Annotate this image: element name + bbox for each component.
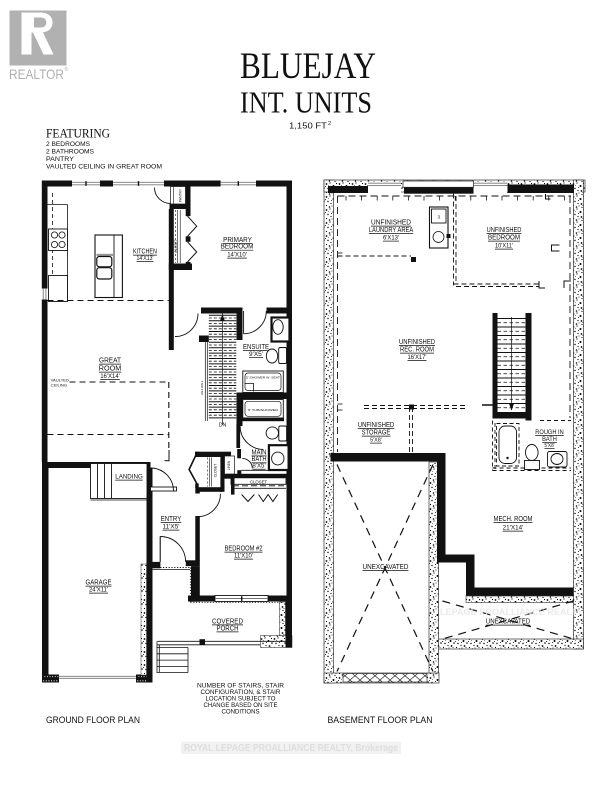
svg-text:VAULTED: VAULTED <box>51 379 70 383</box>
svg-text:BASEMENT FLOOR PLAN: BASEMENT FLOOR PLAN <box>328 715 433 726</box>
svg-text:UNFINISHED: UNFINISHED <box>487 227 522 234</box>
svg-text:LANDING: LANDING <box>115 475 143 481</box>
svg-text:CONDITIONS: CONDITIONS <box>222 709 260 716</box>
svg-text:BEDROOM: BEDROOM <box>221 244 254 251</box>
svg-text:VAULTED CEILING IN GREAT ROOM: VAULTED CEILING IN GREAT ROOM <box>46 164 162 171</box>
svg-text:1,150 FT: 1,150 FT <box>289 121 327 131</box>
svg-text:24'X11': 24'X11' <box>89 588 108 594</box>
svg-text:UNFINISHED: UNFINISHED <box>371 220 411 227</box>
svg-text:UNFINISHED: UNFINISHED <box>358 422 395 429</box>
svg-text:MECH. ROOM: MECH. ROOM <box>494 516 533 523</box>
svg-text:21'X14': 21'X14' <box>503 526 524 532</box>
svg-text:CLOSET: CLOSET <box>250 479 267 484</box>
svg-text:ROYAL LEPAGE PROALLIANCE REALT: ROYAL LEPAGE PROALLIANCE REALTY, Brokera… <box>184 743 398 754</box>
svg-text:DN: DN <box>219 423 227 429</box>
svg-text:REALTOR: REALTOR <box>9 66 64 82</box>
svg-text:GREAT: GREAT <box>99 358 122 365</box>
svg-text:GROUND FLOOR PLAN: GROUND FLOOR PLAN <box>46 715 140 726</box>
svg-text:CLOSET: CLOSET <box>174 239 178 252</box>
svg-text:STORAGE: STORAGE <box>362 430 391 437</box>
svg-text:ROOM: ROOM <box>99 366 122 373</box>
svg-text:6'X13': 6'X13' <box>383 236 399 242</box>
svg-text:5'X8': 5'X8' <box>544 443 554 449</box>
svg-text:11'X5': 11'X5' <box>163 525 180 531</box>
svg-text:BLUEJAY: BLUEJAY <box>240 46 376 87</box>
svg-text:ROUGH IN: ROUGH IN <box>535 429 564 436</box>
svg-text:PORCH: PORCH <box>217 625 239 632</box>
svg-text:ENSUITE: ENSUITE <box>243 344 269 351</box>
svg-text:LEPAGE PROALLIANCE REALTY: LEPAGE PROALLIANCE REALTY <box>440 607 584 618</box>
svg-text:INT. UNITS: INT. UNITS <box>240 85 372 120</box>
svg-text:GARAGE: GARAGE <box>86 580 112 587</box>
svg-text:LAUNDRY AREA: LAUNDRY AREA <box>369 227 414 234</box>
svg-text:®: ® <box>65 66 69 73</box>
svg-text:2 BATHROOMS: 2 BATHROOMS <box>46 149 94 156</box>
svg-text:9'X5': 9'X5' <box>249 352 263 358</box>
svg-text:UNFINISHED: UNFINISHED <box>399 339 435 346</box>
svg-text:UNEXCAVATED: UNEXCAVATED <box>486 619 530 626</box>
svg-text:BATH: BATH <box>251 456 266 463</box>
svg-text:BATH: BATH <box>542 436 557 443</box>
svg-text:16'X14': 16'X14' <box>100 374 120 380</box>
svg-text:14'X13': 14'X13' <box>137 256 154 262</box>
svg-text:LINEN: LINEN <box>227 460 231 470</box>
svg-text:11'X10': 11'X10' <box>234 554 253 560</box>
svg-text:HALF WALL: HALF WALL <box>200 380 204 395</box>
svg-text:5'X8': 5'X8' <box>370 438 382 444</box>
svg-text:5' TUB/SHOWER: 5' TUB/SHOWER <box>248 408 279 412</box>
svg-text:2: 2 <box>328 121 331 127</box>
svg-text:KITCHEN: KITCHEN <box>133 249 157 256</box>
svg-text:14'X10': 14'X10' <box>227 253 247 259</box>
svg-text:BEDROOM #2: BEDROOM #2 <box>225 546 263 553</box>
svg-text:UNEXCAVATED: UNEXCAVATED <box>363 564 409 571</box>
svg-text:8'X5': 8'X5' <box>252 464 265 470</box>
svg-text:ENTRY: ENTRY <box>161 516 182 523</box>
svg-text:16'X17': 16'X17' <box>408 355 427 361</box>
svg-text:COVERED: COVERED <box>212 618 243 625</box>
svg-text:5' SHOWER W. SEAT: 5' SHOWER W. SEAT <box>246 376 280 380</box>
svg-text:10'X11': 10'X11' <box>495 244 513 250</box>
svg-text:FEATURING: FEATURING <box>46 127 110 141</box>
svg-text:2 BEDROOMS: 2 BEDROOMS <box>46 141 90 148</box>
svg-text:BEDROOM: BEDROOM <box>488 235 520 242</box>
svg-text:REC. ROOM: REC. ROOM <box>400 347 434 354</box>
svg-text:CEILING: CEILING <box>51 384 68 388</box>
svg-text:PANTRY: PANTRY <box>46 156 74 163</box>
svg-text:CLOSET: CLOSET <box>213 464 217 478</box>
svg-text:PANTRY: PANTRY <box>179 188 183 202</box>
